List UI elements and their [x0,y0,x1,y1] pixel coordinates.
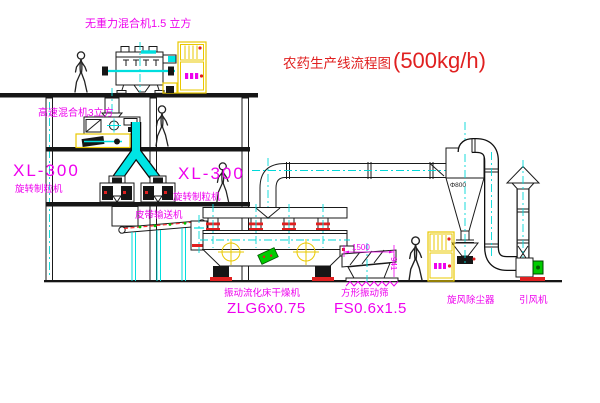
induced-draft-fan [516,258,545,281]
label-granulator-right-model: XL-300 [178,164,245,183]
label-screen-model: FS0.6x1.5 [334,300,407,317]
label-belt-conveyor: 皮带输送机 [135,209,183,221]
label-gravity-mixer: 无重力混合机1.5 立方 [85,16,191,30]
label-granulator-right-name: 旋转制粒机 [173,191,221,203]
pesticide-line-flow-diagram: 农药生产线流程图(500kg/h) 无重力混合机1.5 立方 高速混合机3立方 … [0,0,600,403]
granulator-right-machine [141,176,175,202]
page-title: 农药生产线流程图(500kg/h) [283,48,486,73]
label-dryer-name: 振动流化床干燥机 [224,287,301,299]
indicator-light-icon [198,46,201,49]
label-granulator-left-name: 旋转制粒机 [15,183,63,195]
dimension-941-text: 941 [389,257,398,271]
indicator-light-icon [448,264,451,267]
control-cabinet-ground [428,232,454,281]
label-screen-name: 方形振动筛 [341,287,389,299]
label-granulator-left-model: XL-300 [13,161,80,180]
indicator-light-icon [200,74,203,77]
label-dryer-model: ZLG6x0.75 [227,300,306,317]
gravity-free-mixer [102,42,177,93]
dimension-1500-text: 1500 [352,243,370,252]
diagram-canvas: 农药生产线流程图(500kg/h) 无重力混合机1.5 立方 高速混合机3立方 … [0,0,600,403]
fluid-bed-dryer [200,204,350,281]
cyclone-diameter-note: Φ800 [450,182,466,189]
person-figure-top-floor [75,52,87,92]
person-figure-mixer-floor [156,106,168,146]
person-figure-ground [409,237,422,280]
label-fan: 引风机 [519,294,548,306]
title-text: 农药生产线流程图 [283,56,391,71]
vibration-motor [312,266,334,281]
label-high-speed-mixer: 高速混合机3立方 [38,106,114,119]
control-cabinet-top [178,42,206,93]
indicator-light-icon [447,237,450,240]
pipe-flanges [206,223,330,231]
label-cyclone: 旋风除尘器 [447,294,495,306]
vibration-motor [210,266,232,281]
title-capacity: (500kg/h) [393,48,486,73]
granulator-left-machine [100,176,134,202]
ground-line [44,280,562,282]
